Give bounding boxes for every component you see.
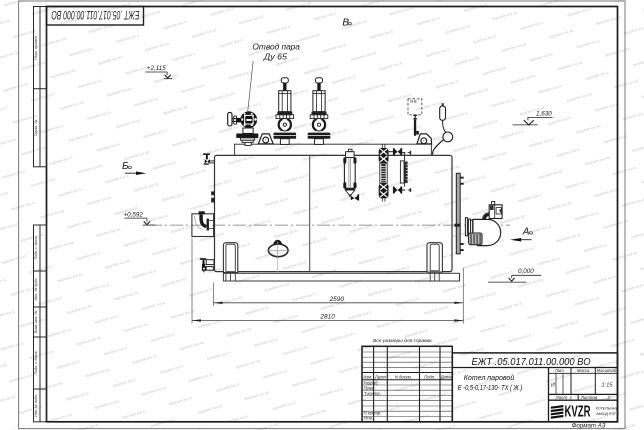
svg-text:Все размеры для справок.: Все размеры для справок. xyxy=(373,338,433,344)
svg-text:Е -0,5-0,17-130- ТХ ( Ж ): Е -0,5-0,17-130- ТХ ( Ж ) xyxy=(458,385,523,392)
svg-text:Листов: Листов xyxy=(580,395,598,400)
svg-text:Инв. № подл.: Инв. № подл. xyxy=(34,394,38,417)
svg-text:KVZR: KVZR xyxy=(565,404,591,421)
svg-text:КОТЕЛЬНЫЙ: КОТЕЛЬНЫЙ xyxy=(596,407,619,411)
svg-text:N докум.: N докум. xyxy=(395,374,412,379)
svg-text:Перв. примен.: Перв. примен. xyxy=(34,35,38,60)
svg-text:Пров.: Пров. xyxy=(364,386,375,391)
svg-text:Дата: Дата xyxy=(440,374,453,379)
svg-text:А: А xyxy=(522,227,530,238)
svg-text:Лит.: Лит. xyxy=(554,368,565,373)
svg-text:Ду 65: Ду 65 xyxy=(263,52,288,61)
svg-text:2: 2 xyxy=(607,395,611,400)
svg-text:0,000: 0,000 xyxy=(518,268,534,275)
svg-text:ЗАВОД РЭТ: ЗАВОД РЭТ xyxy=(596,412,617,416)
svg-text:Отвод пара: Отвод пара xyxy=(252,42,300,51)
svg-text:Подп.: Подп. xyxy=(424,374,435,379)
svg-text:Взам. инв. №: Взам. инв. № xyxy=(34,311,38,334)
svg-text:Т.контр.: Т.контр. xyxy=(364,391,381,396)
svg-text:Подп. и дата: Подп. и дата xyxy=(34,351,38,374)
svg-text:Б: Б xyxy=(122,161,129,172)
svg-text:Изм.: Изм. xyxy=(363,374,372,379)
svg-text:2810: 2810 xyxy=(319,314,335,321)
svg-text:1,630: 1,630 xyxy=(536,111,552,118)
svg-text:И: И xyxy=(551,382,555,388)
svg-text:Лист: Лист xyxy=(374,374,386,379)
svg-text:Масштаб: Масштаб xyxy=(597,368,617,373)
svg-text:Лист: Лист xyxy=(555,395,568,400)
svg-text:Формат А3: Формат А3 xyxy=(571,423,605,430)
svg-text:Котел паровой: Котел паровой xyxy=(464,373,515,382)
svg-text:1:15: 1:15 xyxy=(602,382,614,388)
svg-text:ЕЖТ .05.017.011.00.000 ВО: ЕЖТ .05.017.011.00.000 ВО xyxy=(51,8,139,22)
svg-text:Инв. № дубл.: Инв. № дубл. xyxy=(34,278,38,301)
svg-text:+0,592: +0,592 xyxy=(124,211,144,218)
svg-text:ЕЖТ .05.017.011.00.000 ВО: ЕЖТ .05.017.011.00.000 ВО xyxy=(472,357,591,368)
svg-text:Подп. и дата: Подп. и дата xyxy=(34,236,38,259)
svg-text:2590: 2590 xyxy=(329,296,345,303)
svg-text:+2,115: +2,115 xyxy=(147,65,166,72)
svg-text:Масса: Масса xyxy=(577,368,590,373)
svg-text:Утв.: Утв. xyxy=(364,416,374,421)
svg-text:Справ. №: Справ. № xyxy=(34,120,38,137)
